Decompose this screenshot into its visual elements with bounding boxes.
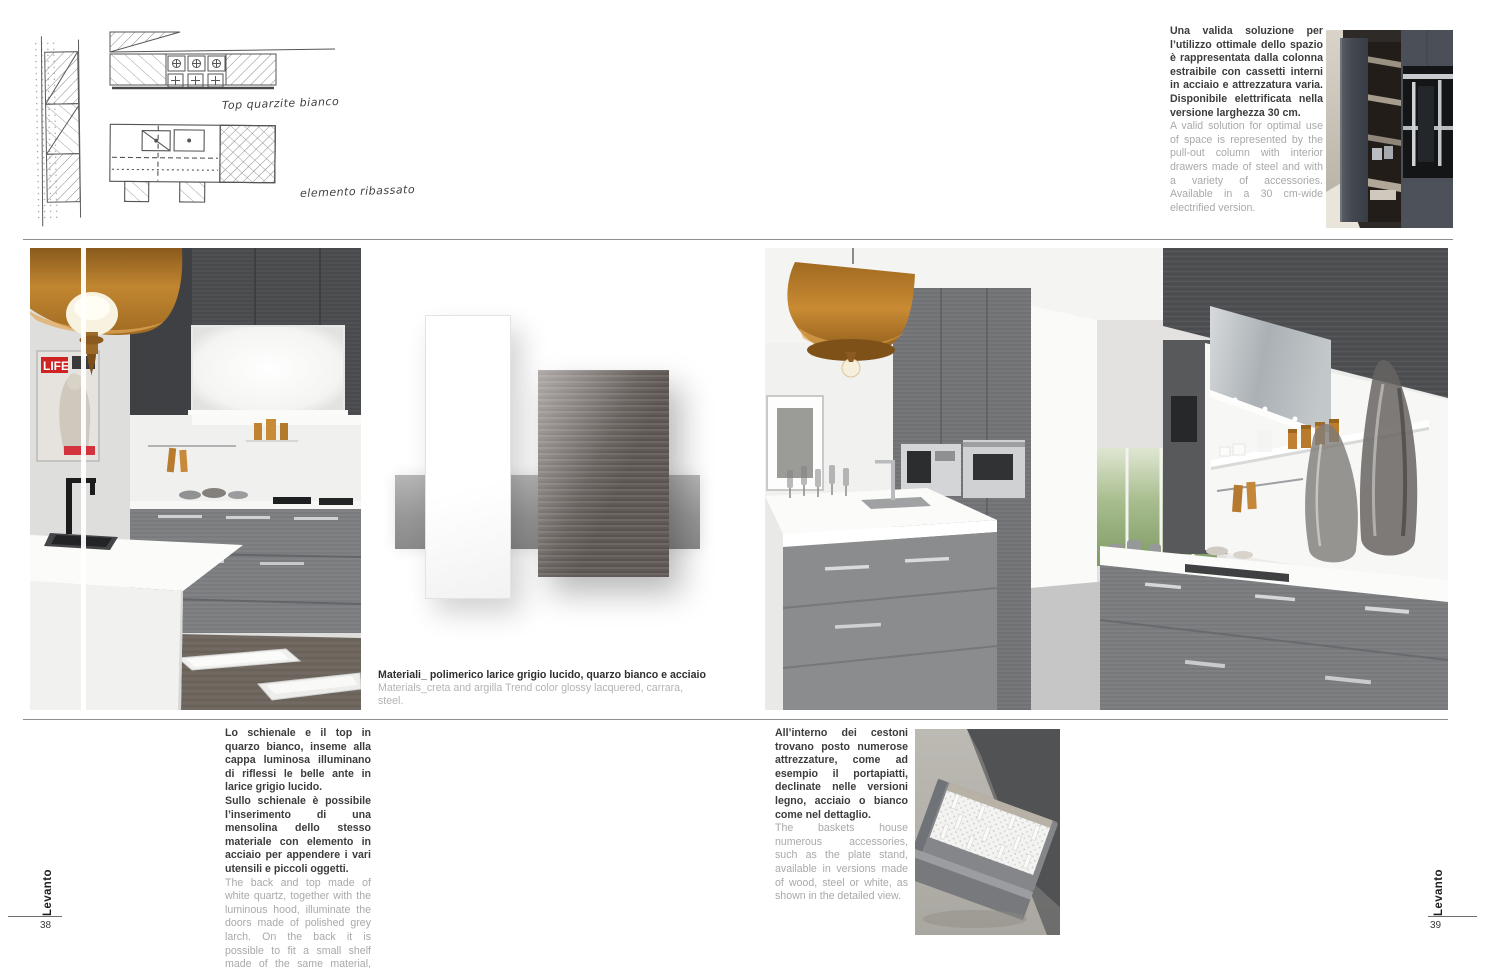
brand-left: Levanto <box>42 858 54 916</box>
bottom-divider <box>23 719 1448 720</box>
body-text-right: All’interno dei cestoni trovano posto nu… <box>775 727 908 904</box>
photo-gutter <box>81 248 86 710</box>
materials-caption-it: Materiali_ polimerico larice grigio luci… <box>378 669 708 682</box>
body-right-en: The baskets house numerous accessories, … <box>775 822 908 904</box>
materials-caption: Materiali_ polimerico larice grigio luci… <box>378 669 708 709</box>
drawer-shadow <box>923 910 1027 928</box>
oven-cabinets <box>1401 30 1453 228</box>
intro-text: Una valida soluzione per l’utilizzo otti… <box>1170 25 1323 215</box>
bowl <box>1206 547 1228 556</box>
life-poster-title: LIFE <box>43 359 69 373</box>
footer-line-left <box>8 916 62 917</box>
kitchen-left-illustration: LIFE <box>30 248 361 710</box>
sketch-tall-column <box>30 36 81 227</box>
drawer-detail-photo <box>915 729 1060 935</box>
grey-larch-sample <box>538 370 669 577</box>
intro-text-it: Una valida soluzione per l’utilizzo otti… <box>1170 25 1323 120</box>
materials-caption-en: Materials_creta and argilla Trend color … <box>378 682 708 708</box>
backsplash <box>130 415 361 503</box>
pullout-column-photo <box>1326 30 1453 228</box>
footer-line-right <box>1428 916 1477 917</box>
page-number-right: 39 <box>1430 920 1441 931</box>
brand-right: Levanto <box>1433 858 1445 916</box>
intro-text-en: A valid solution for optimal use of spac… <box>1170 120 1323 215</box>
drawer-illustration <box>915 729 1060 935</box>
body-left-it1: Lo schienale e il top in quarzo bianco, … <box>225 727 371 795</box>
kitchen-photo-left: LIFE <box>30 248 361 710</box>
top-divider <box>23 239 1453 240</box>
sketch-wall-units <box>110 32 335 88</box>
body-text-left: Lo schienale e il top in quarzo bianco, … <box>225 727 371 968</box>
body-left-en: The back and top made of white quartz, t… <box>225 877 371 968</box>
body-right-it: All’interno dei cestoni trovano posto nu… <box>775 727 908 822</box>
white-quartz-sample <box>425 315 511 599</box>
pullout-column-open <box>1340 38 1401 222</box>
sketch-cooktop <box>168 56 225 87</box>
page-number-left: 38 <box>40 920 51 931</box>
kitchen-photo-right <box>765 248 1448 710</box>
plan-sketch-drawing <box>30 18 400 233</box>
materials-photo <box>378 253 758 665</box>
luminous-hood <box>188 326 348 415</box>
bowl <box>1233 551 1253 559</box>
sketch-island <box>110 124 276 202</box>
body-left-it2: Sullo schienale è possibile l’inseriment… <box>225 795 371 877</box>
wall-picture-frame <box>767 396 823 490</box>
pullout-column-illustration <box>1326 30 1453 228</box>
kitchen-right-illustration <box>765 248 1448 710</box>
plan-sketch <box>30 18 400 233</box>
catalog-spread: Top quarzite bianco elemento ribassato U… <box>0 0 1485 968</box>
